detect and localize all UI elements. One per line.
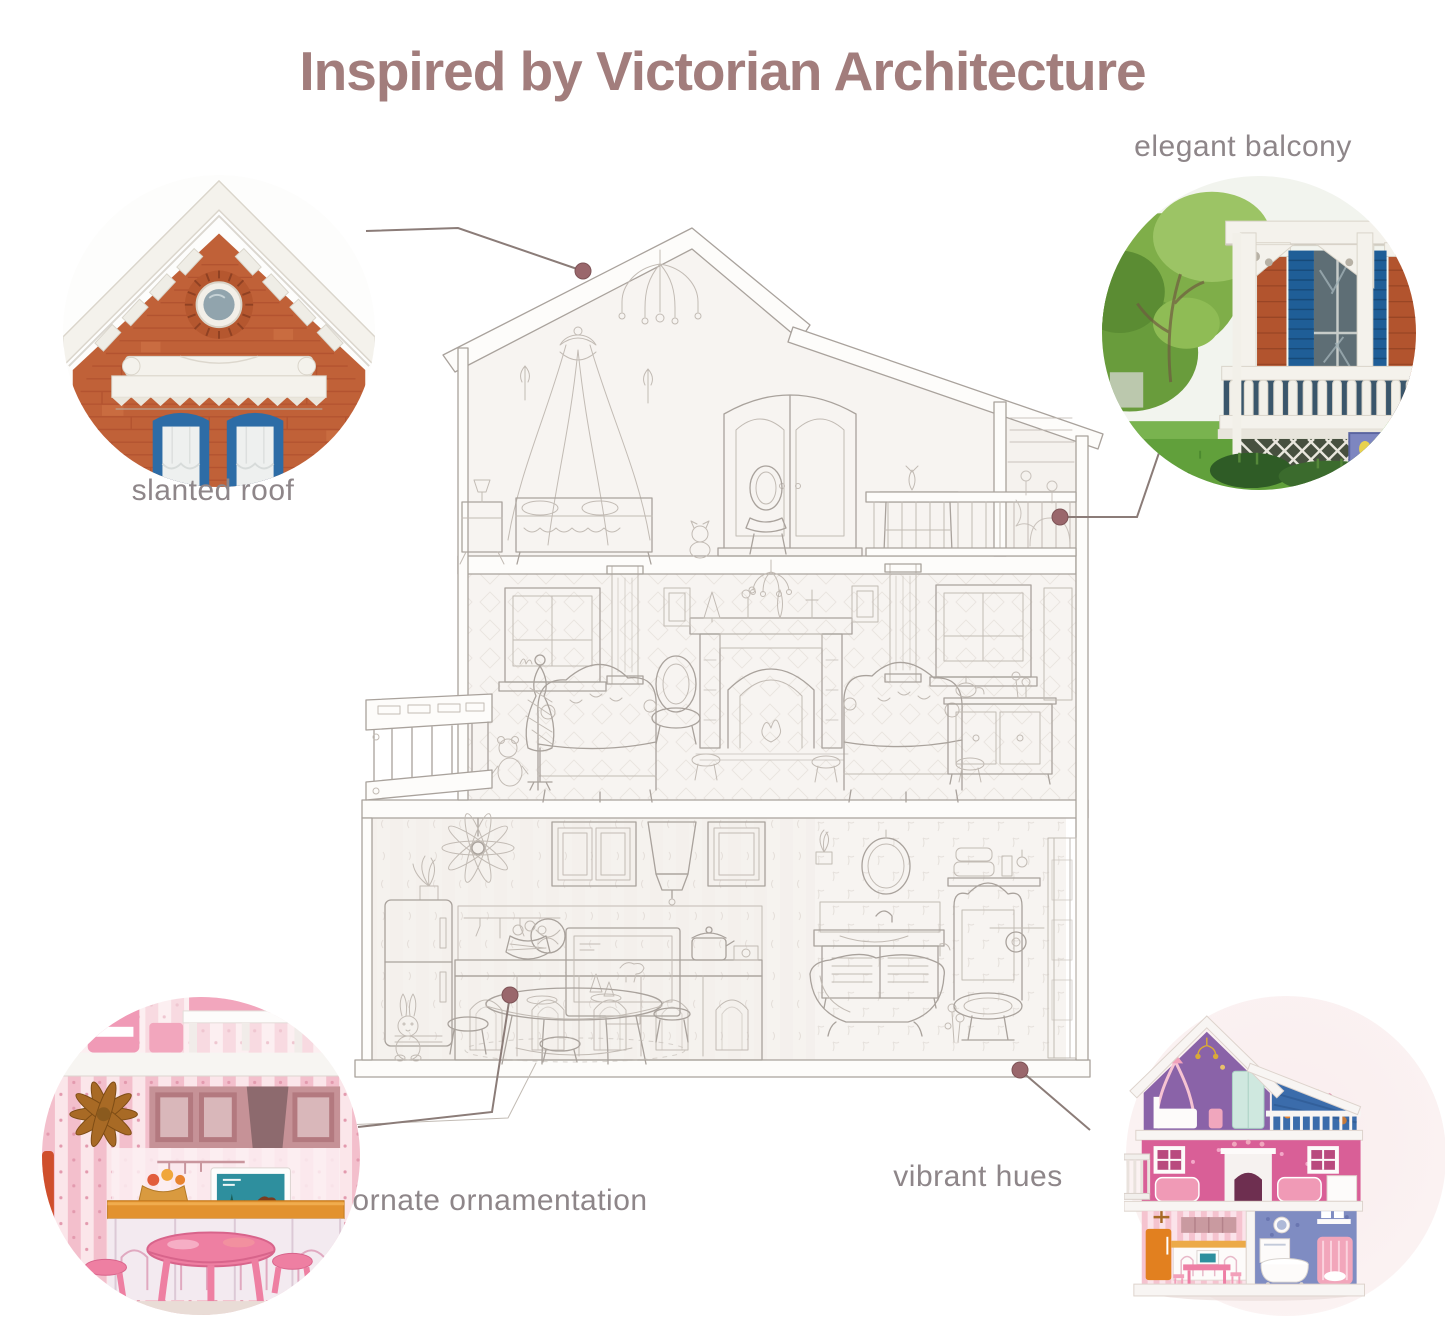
mini-bathroom [1255,1211,1357,1286]
upper-cabinets [149,1086,340,1148]
mini-floor-1 [1136,1130,1363,1140]
mini-living-room [1142,1140,1361,1202]
left-wall-lower [362,818,372,1060]
product-infographic: Inspired by Victorian Architecture slant… [0,0,1445,1335]
callout-line-slanted-roof [366,228,583,271]
callout-line-vibrant-hues [1020,1070,1090,1130]
round-window-icon [185,271,253,339]
ornate-ornamentation-label: ornate ornamentation [352,1184,647,1218]
gable-ornament [122,356,315,376]
downspout [1233,233,1242,463]
ornate-ornamentation-photo [42,997,360,1315]
vibrant-hues-label: vibrant hues [893,1160,1062,1194]
mini-floor-2 [1124,1201,1363,1211]
mini-fireplace [1221,1148,1276,1154]
callout-dot-ornate-ornamentation [502,987,518,1003]
mini-attic [1144,1032,1270,1133]
left-wall-upper [458,348,468,800]
floor-band [42,1053,360,1077]
slanted-roof-label: slanted roof [132,474,295,508]
mini-toilet [1317,1237,1352,1284]
vibrant-hues-photo [1124,1006,1400,1302]
mini-base [1134,1284,1365,1296]
elegant-balcony-label: elegant balcony [1134,130,1352,164]
base-band [355,1060,1090,1077]
callout-dot-vibrant-hues [1012,1062,1028,1078]
right-wall [1076,436,1088,1060]
mini-divider [1246,1211,1255,1284]
attic-floor-band [458,556,1076,574]
callout-dot-slanted-roof [575,263,591,279]
mini-table [1183,1264,1230,1270]
middle-floor-band [362,800,1088,818]
callout-dot-elegant-balcony [1052,509,1068,525]
slanted-roof-photo [63,175,375,487]
mini-kitchen [1142,1211,1248,1288]
elegant-balcony-photo [1102,176,1416,490]
